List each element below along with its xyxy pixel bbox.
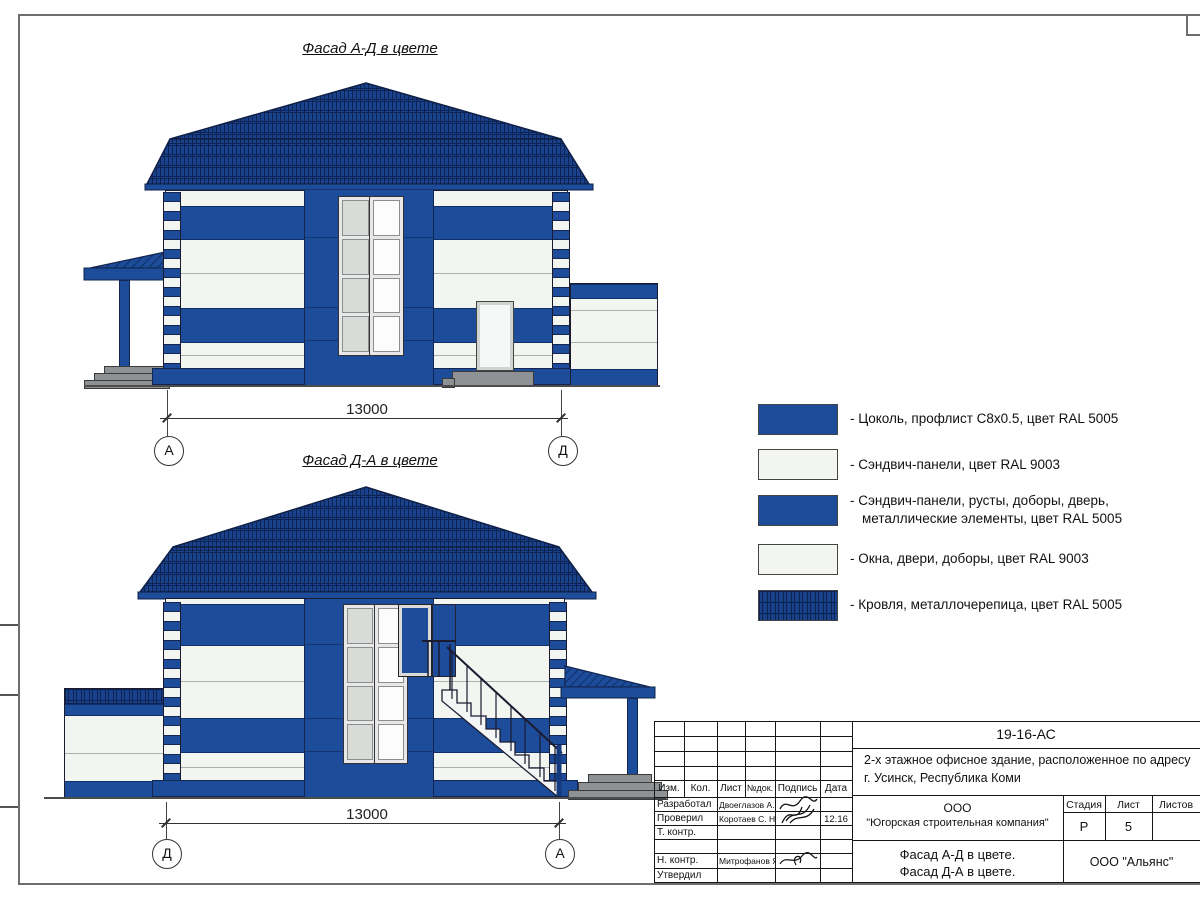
facade-da-roof [132,482,600,602]
panel-joint [571,310,657,311]
window-pane [373,239,400,275]
legend-swatch-roof [758,590,838,621]
tb-role: Разработал [657,799,716,810]
window-pane [342,239,369,275]
tb-date: 12.16 [820,814,852,825]
legend-label: металлические элементы, цвет RAL 5005 [862,511,1122,526]
stair-railing [447,647,562,753]
window-pane [378,724,404,760]
external-staircase [418,632,570,800]
extension-line [167,390,168,436]
tb-line [852,840,1200,841]
facade-da-annex [64,688,165,797]
facade-ad-annex [570,283,658,385]
dimension-line [160,418,568,419]
roof-skirt [140,547,592,592]
legend-swatch-plinth [758,404,838,435]
tb-line [852,795,1200,796]
tb-line [654,825,852,826]
tb-project-line1: 2-х этажное офисное здание, расположенно… [864,753,1200,767]
annex-blue-band [65,704,164,716]
frame-left [18,14,20,885]
window-pane [373,316,400,352]
facade-da-title: Фасад Д-А в цвете [255,452,485,469]
facade-ad-porch-canopy [80,248,174,284]
window-pane [347,686,373,722]
signature [776,852,820,868]
window-pane [378,686,404,722]
window-pane [342,200,369,236]
tb-sheetname-line1: Фасад А-Д в цвете. [852,847,1063,862]
tb-document-code: 19-16-АС [852,726,1200,742]
tb-stage-value: Р [1063,819,1105,834]
tb-line [654,721,1200,722]
corner-rustication [552,192,570,368]
frame-bottom [18,883,1200,885]
tb-name: Коротаев С. Н. [719,814,775,824]
legend-label: - Сэндвич-панели, русты, доборы, дверь, [850,493,1109,508]
canopy-column [627,698,638,778]
tb-role: Т. контр. [657,827,716,838]
extension-line [561,390,562,436]
tb-line [654,721,655,883]
window-pane [373,200,400,236]
tall-window [369,196,404,356]
axis-marker: Д [152,839,182,869]
tb-role: Утвердил [657,870,716,881]
corner-rustication [163,602,181,780]
tb-line [654,811,852,812]
facade-ad-roof [140,78,596,192]
panel-joint [65,753,164,754]
tb-role: Проверил [657,813,716,824]
tb-name: Двоеглазов А. В. [719,800,775,810]
legend-swatch-panels [758,449,838,480]
tb-col-data: Дата [820,783,852,794]
tb-line [654,853,852,854]
tall-window [343,604,377,764]
roof-skirt [147,139,589,184]
legend-swatch-windows [758,544,838,575]
tb-line [654,868,852,869]
window-pane [347,647,373,683]
window-pane [347,608,373,644]
tall-window [338,196,373,356]
tb-company-line1: ООО [852,801,1063,815]
legend-label: - Кровля, металлочерепица, цвет RAL 5005 [850,597,1122,612]
window-pane [342,316,369,352]
tb-stage-label: Стадия [1063,799,1105,811]
legend-label: - Сэндвич-панели, цвет RAL 9003 [850,457,1060,472]
panel-joint [571,342,657,343]
tb-line [852,748,1200,749]
tb-sheets-label: Листов [1152,799,1200,811]
tb-name: Митрофанов Я. А. [719,856,775,866]
frame-corner-box [1186,16,1200,36]
window-pane [342,278,369,314]
legend-swatch-elements [758,495,838,526]
tb-line [1063,812,1200,813]
corner-rustication [163,192,181,368]
window-pane [347,724,373,760]
legend-label: - Цоколь, профлист С8х0.5, цвет RAL 5005 [850,411,1118,426]
tb-line [654,839,852,840]
annex-roof-band [65,689,164,704]
dimension-line [159,823,566,824]
frame-top [18,14,1200,16]
legend-label: - Окна, двери, доборы, цвет RAL 9003 [850,551,1089,566]
tb-col-list: Лист [717,783,745,794]
tb-org: ООО "Альянс" [1063,855,1200,869]
tb-line [654,882,1200,883]
tb-role: Н. контр. [657,855,716,866]
dimension-value: 13000 [322,806,412,823]
ground-line [44,797,666,799]
tb-line [820,721,821,883]
roof-upper [173,487,559,547]
tb-line [654,797,852,798]
signature [776,795,820,827]
annex-top-band [571,284,657,299]
axis-marker: А [545,839,575,869]
entrance-door [476,301,514,371]
tb-sheet-value: 5 [1105,819,1152,834]
tb-col-izm: Изм. [654,783,684,794]
facade-ad-title: Фасад А-Д в цвете [255,40,485,57]
tb-line [717,721,718,883]
tb-col-podpis: Подпись [775,783,820,794]
tb-sheet-label: Лист [1105,799,1152,811]
tb-col-ndok: №док. [745,783,775,793]
tb-sheetname-line2: Фасад Д-А в цвете. [852,864,1063,879]
axis-marker: А [154,436,184,466]
tb-company-line2: "Югорская строительная компания" [852,817,1063,829]
drawing-sheet: Фасад А-Д в цвете [0,0,1200,900]
frame-filing-mark [0,624,18,626]
window-pane [373,278,400,314]
axis-marker: Д [548,436,578,466]
dimension-value: 13000 [322,401,412,418]
porch-column [119,280,130,370]
facade-da-canopy [556,660,672,702]
tb-project-line2: г. Усинск, Республика Коми [864,771,1200,785]
roof-upper [170,83,561,139]
frame-filing-mark [0,694,18,696]
tb-col-kol: Кол. [684,783,717,794]
frame-filing-mark [0,806,18,808]
ground-line [84,385,660,387]
